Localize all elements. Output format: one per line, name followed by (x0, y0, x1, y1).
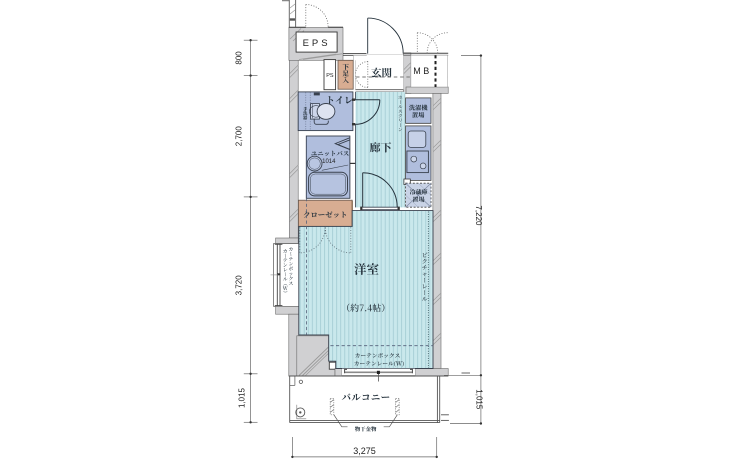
svg-text:1,015: 1,015 (238, 387, 247, 408)
svg-text:800: 800 (235, 51, 244, 65)
svg-text:MB: MB (413, 66, 432, 76)
svg-text:3,720: 3,720 (235, 275, 244, 296)
svg-text:PS: PS (326, 73, 334, 79)
svg-text:1014: 1014 (322, 159, 336, 165)
svg-text:EPS: EPS (303, 38, 331, 49)
svg-text:7,220: 7,220 (474, 205, 483, 226)
svg-text:3,275: 3,275 (353, 446, 376, 456)
svg-text:2,700: 2,700 (235, 126, 244, 147)
svg-text:1,015: 1,015 (475, 389, 484, 410)
